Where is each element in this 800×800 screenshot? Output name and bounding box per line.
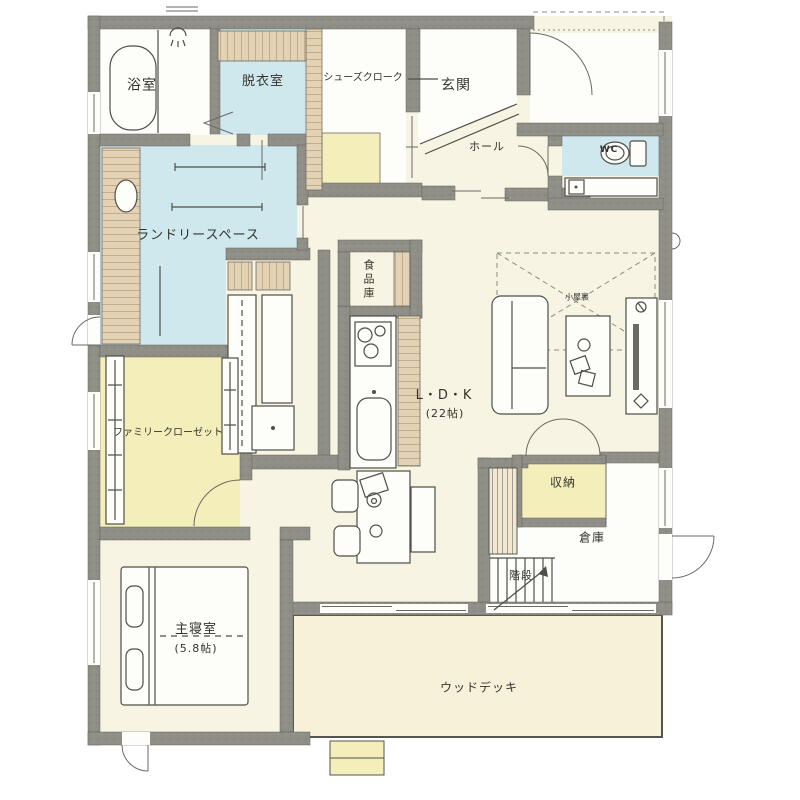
vanity-counter (218, 31, 306, 61)
room-label-ldk: L・D・K (416, 389, 473, 403)
room-label-pantry: 食品庫 (362, 259, 374, 301)
room-label-bedroom: 主寝室 (175, 623, 217, 637)
shelf-unit (489, 468, 517, 554)
floorplan-canvas: 浴室 脱衣室 シューズクローク 玄関 ホール WC ランドリースペース 食品庫 … (0, 0, 800, 800)
room-label-bedroom-size: (5.8帖) (174, 643, 217, 655)
room-label-hall: ホール (469, 141, 505, 153)
room-label-attic-loft: 小屋裏 (565, 294, 589, 303)
wood-partition-wall (306, 29, 322, 190)
porch-floor (530, 33, 659, 123)
corridor-cabinet-b (256, 262, 290, 290)
room-label-storage: 収納 (550, 476, 576, 489)
floorplan-drawing (0, 0, 800, 800)
pantry-shelf (394, 252, 410, 306)
tv-board (626, 298, 657, 414)
room-label-bath: 浴室 (127, 78, 157, 93)
room-label-shoe-cloak: シューズクローク (323, 73, 403, 84)
dining-chair-1 (332, 480, 358, 512)
dining-bench (411, 487, 435, 552)
bedroom-exterior-door-arc (122, 745, 148, 771)
sofa (492, 296, 548, 414)
room-label-ldk-size: (22帖) (426, 408, 465, 420)
dining-table (357, 471, 410, 563)
warehouse-exterior-door-arc (672, 536, 714, 578)
room-label-stairs: 階段 (509, 570, 533, 582)
tv (633, 324, 639, 390)
deck-step-lower (330, 758, 384, 775)
room-label-wc: WC (600, 146, 619, 156)
dining-chair-2 (334, 526, 360, 556)
room-label-entrance: 玄関 (441, 78, 471, 93)
room-label-laundry: ランドリースペース (136, 229, 260, 243)
room-label-wood-deck: ウッドデッキ (440, 681, 518, 694)
laundry-sink (115, 180, 137, 212)
corridor-cabinet-a (228, 262, 252, 290)
room-label-dressing: 脱衣室 (242, 75, 284, 89)
coffee-table (566, 316, 610, 396)
tall-cabinet (262, 295, 292, 403)
wood-deck (293, 615, 662, 737)
washbasin-counter (565, 178, 657, 196)
room-label-family-closet: ファミリークローゼット (113, 428, 223, 439)
room-label-warehouse: 倉庫 (579, 531, 605, 544)
shoe-closet (322, 133, 380, 189)
vent-fan-icon (672, 233, 680, 249)
deck-step-upper (330, 741, 384, 758)
storage-floor (522, 464, 606, 518)
laundry-counter (102, 148, 140, 344)
